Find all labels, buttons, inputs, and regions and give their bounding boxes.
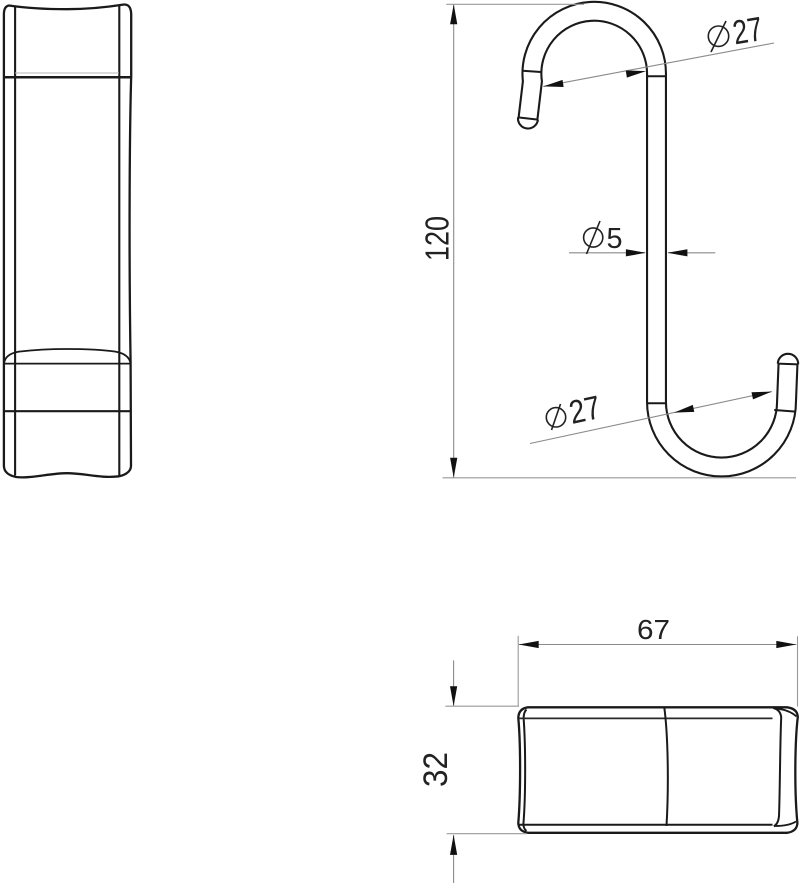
svg-text:32: 32 [417, 752, 455, 787]
svg-text:67: 67 [637, 614, 670, 645]
svg-text:5: 5 [607, 223, 623, 255]
svg-text:120: 120 [419, 216, 456, 261]
svg-text:27: 27 [730, 10, 765, 52]
